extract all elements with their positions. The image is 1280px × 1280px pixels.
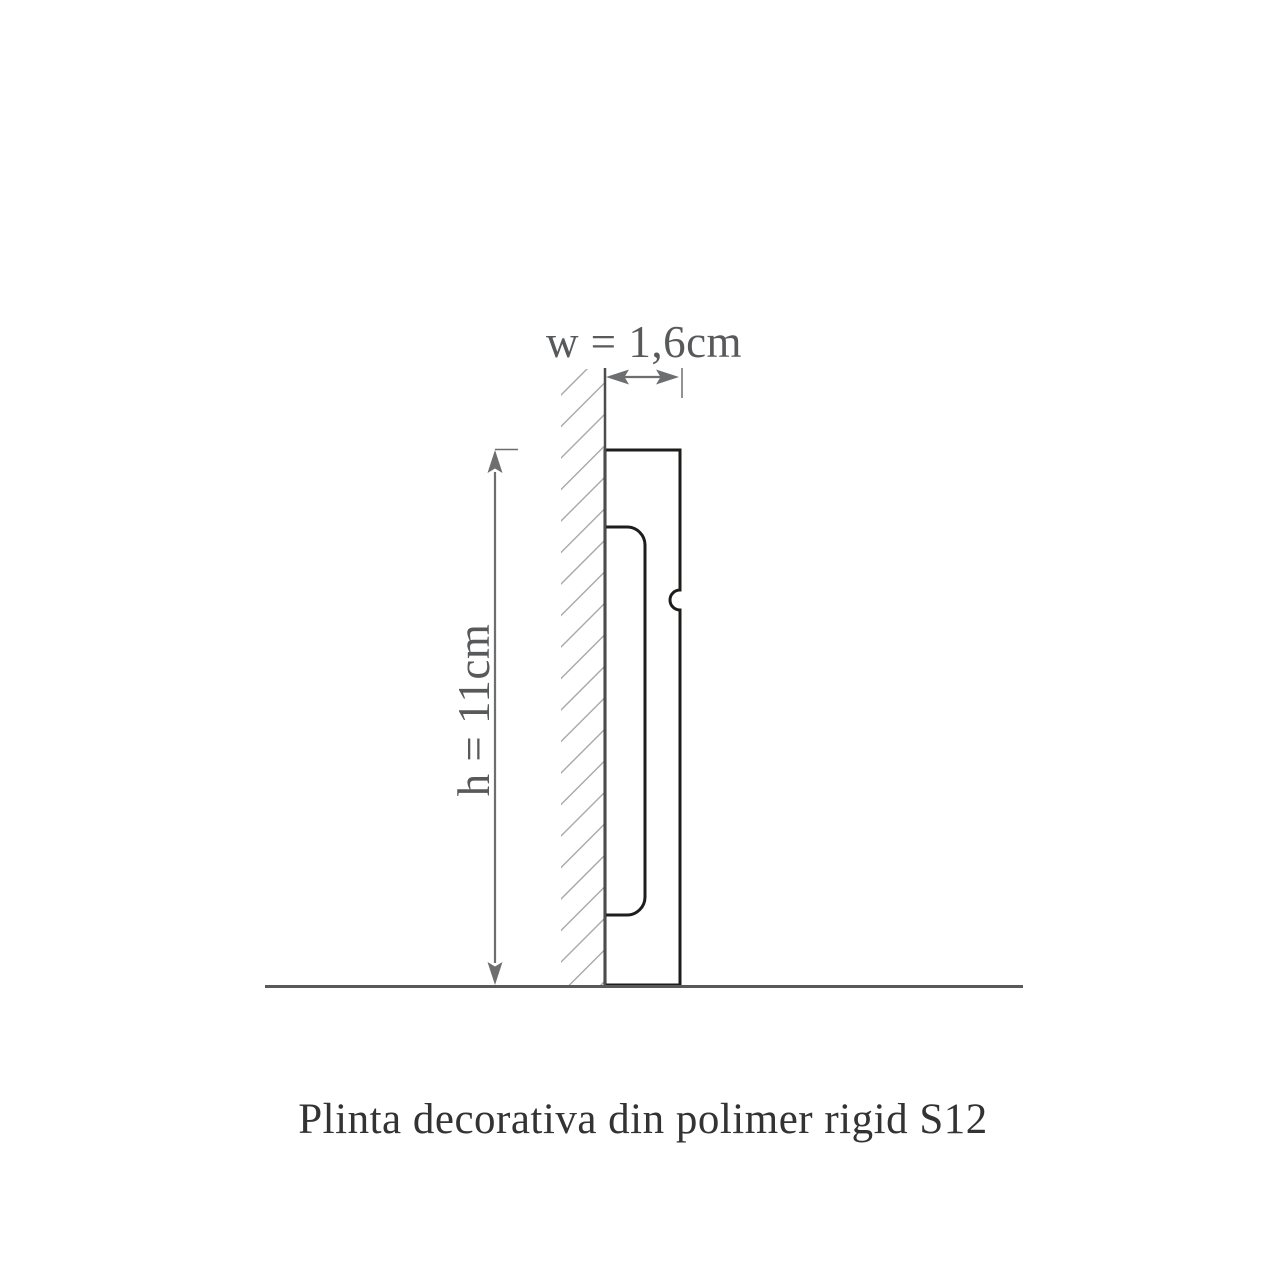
technical-diagram: w = 1,6cm h = 11cm Plinta decorativa din… <box>0 0 1280 1280</box>
plinth-profile-drawing: w = 1,6cm h = 11cm Plinta decorativa din… <box>0 0 1280 1280</box>
height-arrowhead-top-icon <box>488 450 503 473</box>
product-caption: Plinta decorativa din polimer rigid S12 <box>298 1096 987 1143</box>
height-arrowhead-bottom-icon <box>488 962 503 985</box>
width-dimension-label: w = 1,6cm <box>546 317 742 367</box>
wall-hatching <box>556 346 610 1030</box>
width-dimension <box>606 368 682 398</box>
height-dimension-label: h = 11cm <box>449 624 499 797</box>
